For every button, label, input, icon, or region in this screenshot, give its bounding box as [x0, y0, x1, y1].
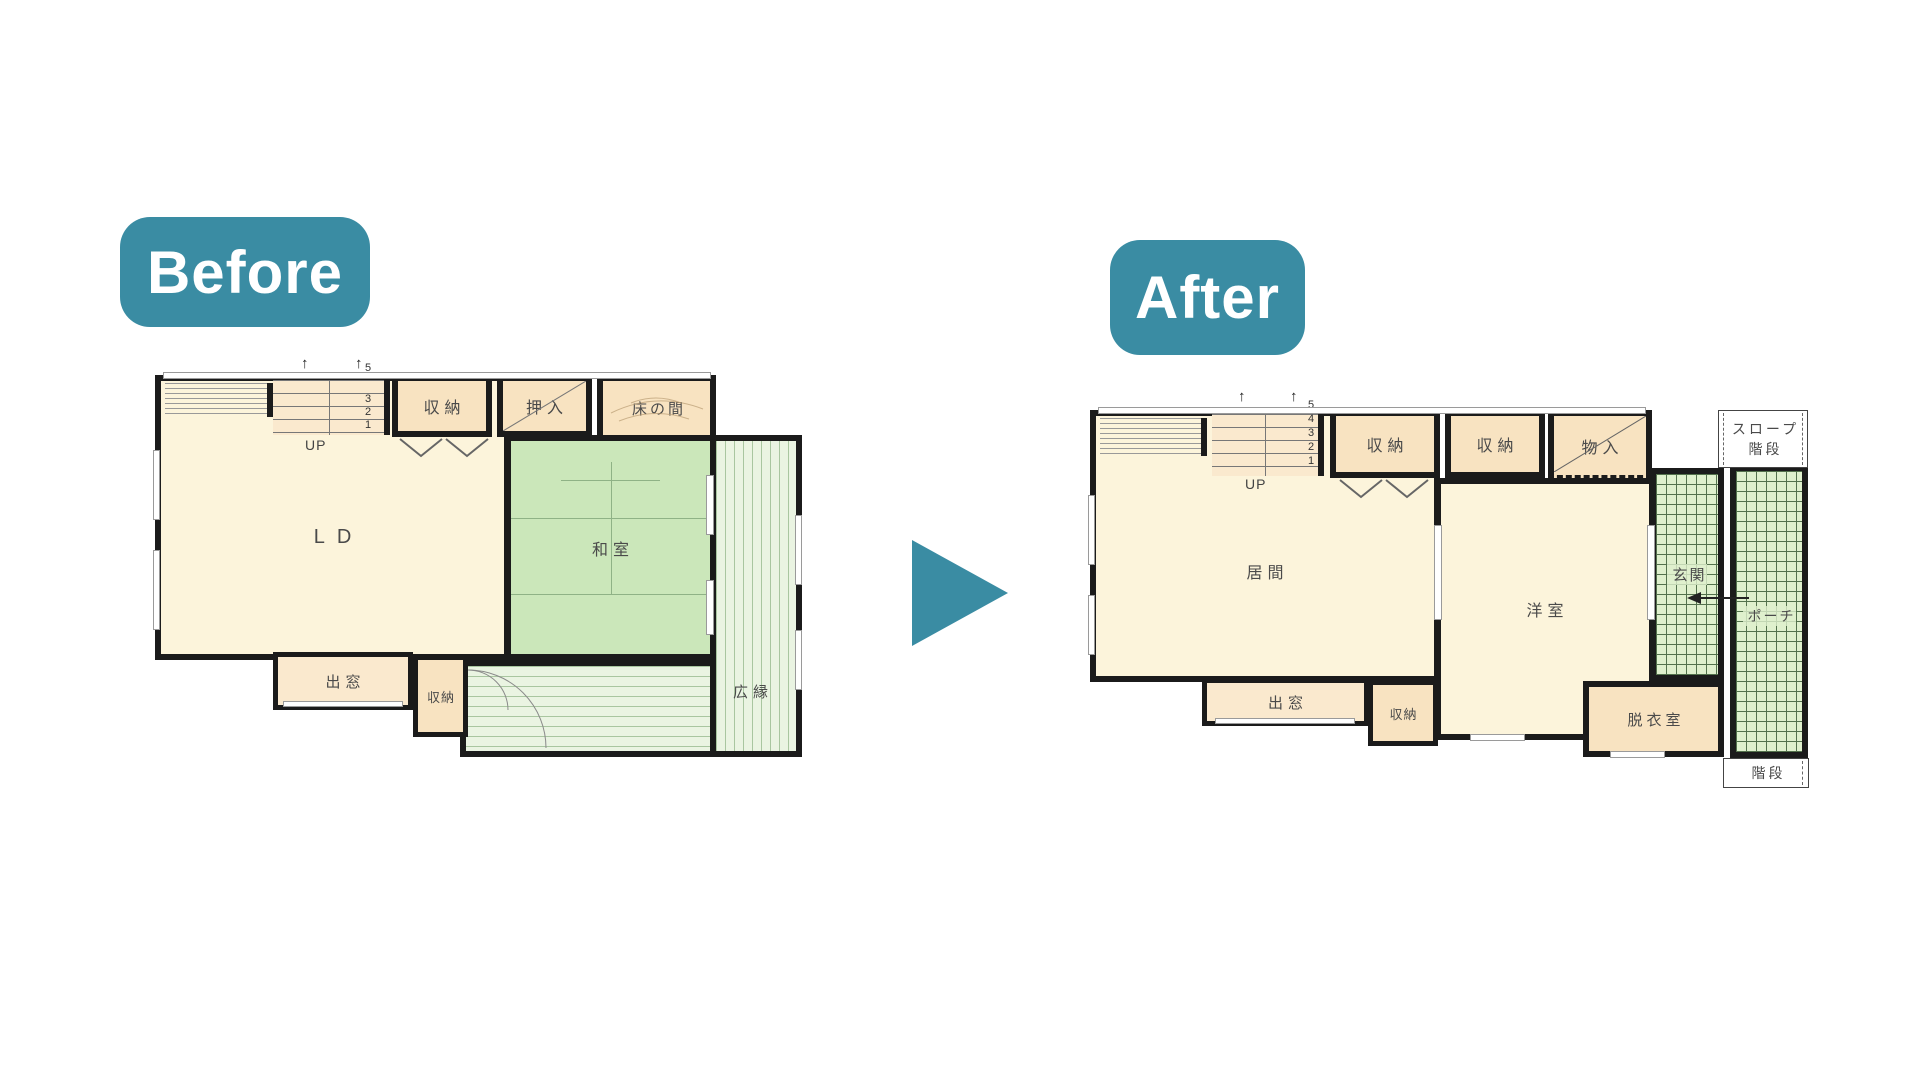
window-segment [1434, 525, 1442, 620]
stair-number: 3 [365, 393, 371, 405]
stair-direction-arrow-icon: ↑ [1238, 388, 1246, 405]
room-ima-label: 居間 [1241, 559, 1288, 583]
window-segment [283, 701, 403, 707]
before-badge-label: Before [147, 238, 343, 307]
veranda-bottom-strip [460, 660, 716, 757]
window-segment [163, 372, 711, 379]
before-floor-plan: 広縁 LD 和室 収納 押入 床の間 [155, 375, 815, 770]
stair-number: 1 [365, 419, 371, 431]
stair-number: 2 [1308, 441, 1314, 453]
room-shunou-top-label: 収納 [418, 394, 465, 418]
room-shunou-top: 収納 [392, 375, 492, 437]
door-swing-arc-icon [468, 668, 548, 752]
room-datsuishitsu-label: 脱衣室 [1622, 709, 1684, 730]
room-shunou-1-label: 収納 [1361, 432, 1408, 456]
entry-arrow-icon [1685, 588, 1755, 608]
tatami-line [561, 480, 661, 481]
closet-diagonal-line [1554, 416, 1646, 472]
room-porch: ポーチ [1730, 465, 1808, 758]
room-porch-label: ポーチ [1743, 606, 1796, 626]
window-segment [1088, 595, 1095, 655]
window-segment [1088, 495, 1095, 565]
room-genkan-label: 玄関 [1667, 564, 1706, 585]
room-shunou-1: 収納 [1330, 410, 1440, 478]
stair-block [273, 380, 390, 435]
window-segment [795, 515, 802, 585]
shelf-louver-block [1100, 418, 1207, 456]
closet-diagonal-line [503, 381, 586, 431]
veranda-label: 広縁 [728, 681, 773, 702]
window-segment [706, 580, 714, 635]
room-monoire: 物入 [1548, 410, 1652, 478]
window-segment [1098, 407, 1646, 414]
dashed-edge [1802, 413, 1803, 465]
after-floor-plan: 玄関 ポーチ 居間 洋室 収納 収納 物入 5 4 3 2 1 UP ↑ ↑ [1090, 410, 1820, 795]
window-segment [1610, 751, 1665, 758]
room-genkan: 玄関 [1650, 468, 1724, 681]
window-segment [795, 630, 802, 690]
shelf-louver-block [165, 383, 273, 417]
room-washitsu: 和室 [505, 435, 716, 660]
room-oshiire: 押入 [497, 375, 592, 437]
room-ld-label: LD [302, 526, 364, 549]
window-segment [1647, 525, 1655, 620]
stair-note-box: 階段 [1723, 758, 1809, 788]
stair-direction-arrow-icon: ↑ [355, 355, 363, 372]
stair-number: 2 [365, 406, 371, 418]
room-shunou-2: 収納 [1445, 410, 1545, 478]
folding-door-icon [1338, 478, 1430, 500]
window-segment [153, 550, 160, 630]
dashed-edge [1723, 413, 1724, 465]
veranda-right-strip: 広縁 [710, 435, 802, 757]
stair-center-line [329, 380, 330, 435]
room-shunou-small-label: 収納 [426, 687, 455, 706]
kaidan-label: 階段 [1747, 763, 1786, 783]
stair-number: 1 [1308, 455, 1314, 467]
room-shunou-small-label: 収納 [1388, 704, 1417, 723]
window-segment [153, 450, 160, 520]
folding-door-icon [398, 437, 490, 459]
slope-kaidan-label: 階段 [1744, 439, 1783, 459]
room-shunou-small: 収納 [413, 655, 468, 737]
dashed-edge [1802, 761, 1803, 785]
room-shunou-small: 収納 [1368, 680, 1438, 746]
room-demado-label: 出窓 [320, 671, 365, 692]
room-datsuishitsu: 脱衣室 [1583, 681, 1724, 757]
wood-grain-decoration [603, 381, 710, 435]
slope-label: スロープ [1727, 419, 1799, 439]
stair-number: 3 [1308, 427, 1314, 439]
stair-center-line [1265, 414, 1266, 476]
window-segment [706, 475, 714, 535]
before-to-after-arrow-icon [912, 540, 1012, 650]
stair-direction-arrow-icon: ↑ [1290, 388, 1298, 405]
after-badge: After [1110, 240, 1305, 355]
stair-up-label: UP [305, 437, 326, 453]
tatami-line [611, 462, 612, 594]
room-tokonoma: 床の間 [597, 375, 716, 441]
stair-direction-arrow-icon: ↑ [301, 355, 309, 372]
window-segment [1470, 734, 1525, 741]
room-shunou-2-label: 収納 [1471, 432, 1518, 456]
after-badge-label: After [1135, 263, 1280, 332]
window-segment [1215, 718, 1355, 724]
room-youshitsu-label: 洋室 [1521, 597, 1568, 621]
tatami-line [511, 594, 710, 595]
room-demado-label: 出窓 [1263, 692, 1308, 713]
before-badge: Before [120, 217, 370, 327]
stair-up-label: UP [1245, 476, 1266, 492]
slope-stair-note-box: スロープ 階段 [1718, 410, 1808, 468]
stair-number: 4 [1308, 413, 1314, 425]
